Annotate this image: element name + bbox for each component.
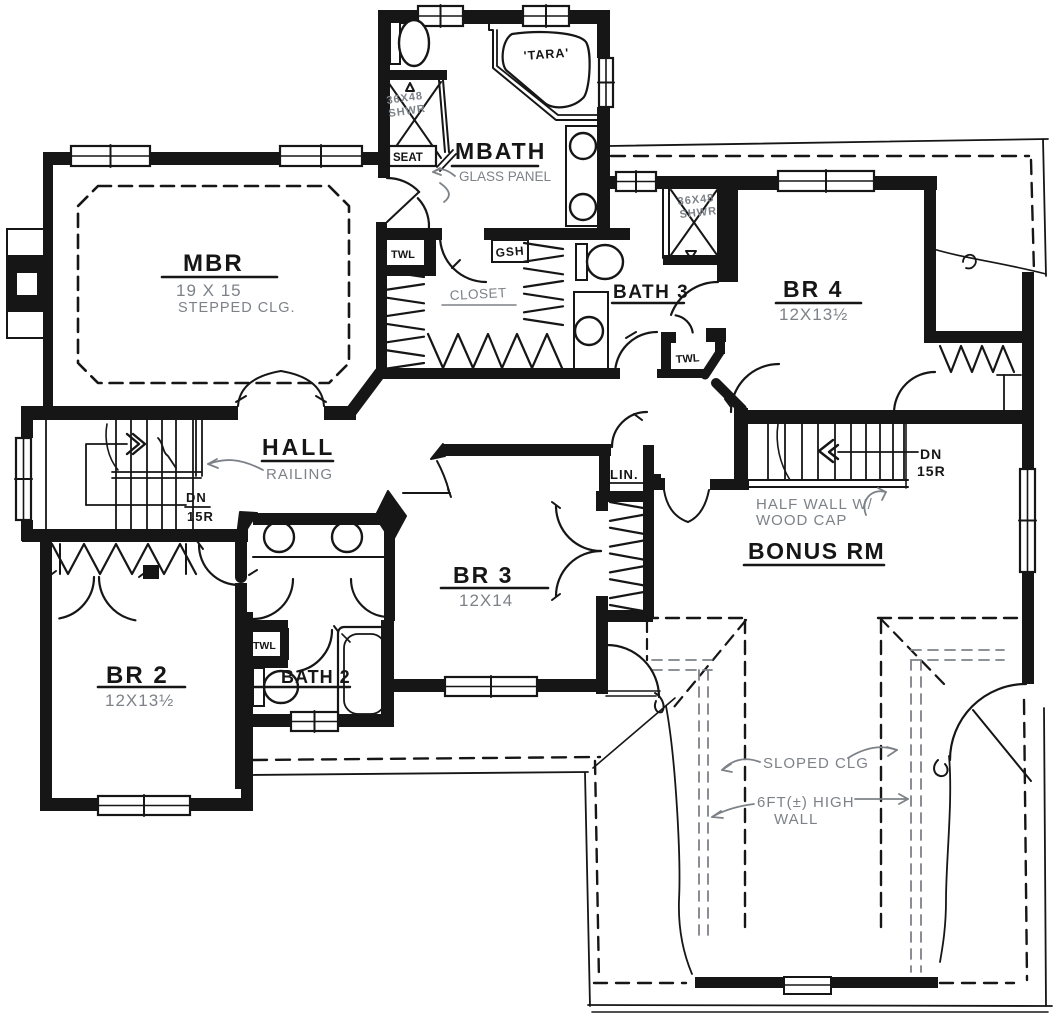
svg-text:MBATH: MBATH [455, 138, 546, 164]
svg-text:TWL: TWL [675, 352, 700, 366]
svg-text:BR 2: BR 2 [106, 662, 169, 689]
svg-text:HALF WALL W/: HALF WALL W/ [756, 496, 873, 513]
svg-text:BATH 2: BATH 2 [281, 667, 351, 687]
svg-text:SLOPED CLG: SLOPED CLG [763, 755, 869, 772]
svg-text:TWL: TWL [391, 249, 415, 261]
svg-text:19 X 15: 19 X 15 [176, 281, 242, 300]
svg-text:BR 4: BR 4 [783, 276, 843, 302]
svg-text:SEAT: SEAT [393, 152, 423, 164]
svg-text:15R: 15R [917, 463, 946, 479]
svg-text:GLASS PANEL: GLASS PANEL [459, 169, 552, 184]
svg-text:BATH 3: BATH 3 [613, 282, 689, 303]
svg-text:6FT(±) HIGH: 6FT(±) HIGH [757, 794, 855, 811]
svg-text:12X14: 12X14 [459, 591, 513, 610]
svg-text:DN: DN [920, 446, 942, 462]
svg-text:BONUS RM: BONUS RM [748, 538, 885, 564]
svg-text:CLOSET: CLOSET [449, 285, 507, 303]
svg-text:MBR: MBR [183, 250, 244, 277]
svg-text:HALL: HALL [262, 434, 335, 460]
svg-text:WALL: WALL [774, 811, 818, 828]
svg-text:TWL: TWL [253, 640, 276, 652]
svg-text:GSH: GSH [495, 244, 525, 260]
svg-text:RAILING: RAILING [266, 466, 333, 483]
svg-text:STEPPED CLG.: STEPPED CLG. [178, 300, 296, 316]
svg-text:12X13½: 12X13½ [105, 691, 174, 710]
svg-text:WOOD CAP: WOOD CAP [756, 512, 847, 529]
svg-text:LIN.: LIN. [610, 467, 639, 482]
svg-text:15R: 15R [187, 509, 214, 524]
svg-text:DN: DN [186, 490, 207, 505]
svg-text:12X13½: 12X13½ [779, 305, 848, 324]
svg-text:BR 3: BR 3 [453, 562, 513, 588]
